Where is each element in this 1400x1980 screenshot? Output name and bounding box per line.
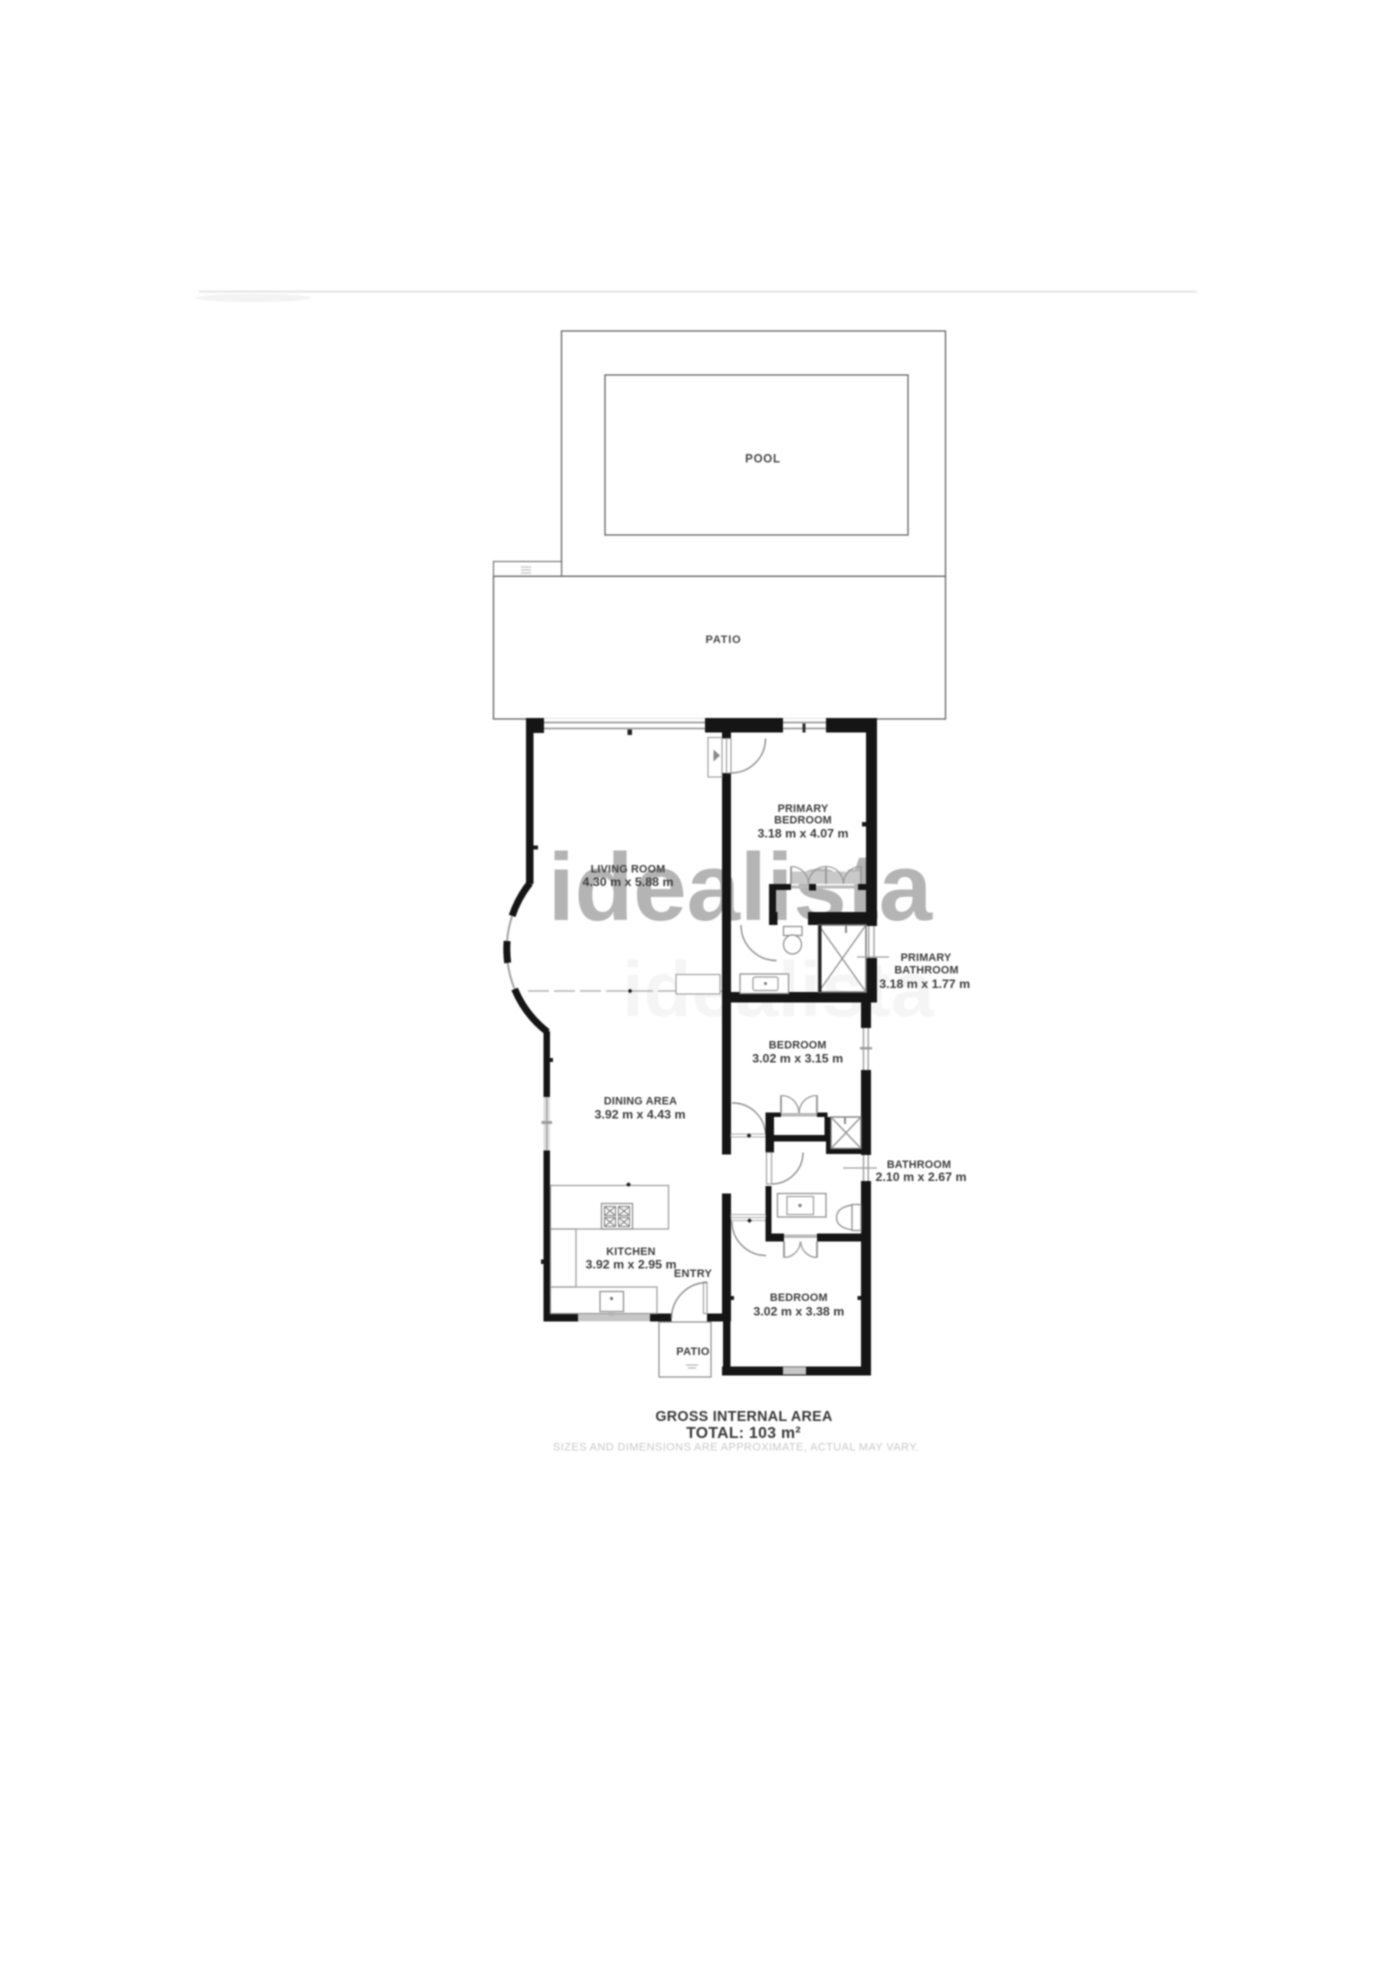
svg-text:3.92 m x 2.95 m: 3.92 m x 2.95 m — [586, 1258, 677, 1272]
svg-text:2.10 m x 2.67 m: 2.10 m x 2.67 m — [876, 1170, 967, 1184]
svg-text:3.18 m x 4.07 m: 3.18 m x 4.07 m — [758, 827, 849, 841]
svg-text:PRIMARY: PRIMARY — [901, 952, 952, 964]
svg-text:BATHROOM: BATHROOM — [894, 965, 958, 977]
svg-text:BEDROOM: BEDROOM — [770, 1292, 828, 1304]
svg-text:PATIO: PATIO — [706, 634, 742, 646]
svg-text:POOL: POOL — [745, 454, 781, 466]
svg-text:3.92 m x 4.43 m: 3.92 m x 4.43 m — [595, 1108, 686, 1122]
svg-text:SIZES AND DIMENSIONS ARE APPRO: SIZES AND DIMENSIONS ARE APPROXIMATE, AC… — [553, 1442, 919, 1454]
svg-text:TOTAL: 103 m²: TOTAL: 103 m² — [686, 1425, 801, 1442]
svg-text:4.30 m x 5.88 m: 4.30 m x 5.88 m — [583, 875, 674, 889]
svg-text:BEDROOM: BEDROOM — [774, 815, 832, 827]
svg-text:PATIO: PATIO — [676, 1346, 710, 1358]
svg-text:DINING AREA: DINING AREA — [604, 1096, 677, 1108]
svg-text:3.02 m x 3.15 m: 3.02 m x 3.15 m — [752, 1052, 843, 1066]
svg-text:3.18 m x 1.77 m: 3.18 m x 1.77 m — [879, 977, 970, 991]
svg-text:BEDROOM: BEDROOM — [769, 1040, 827, 1052]
svg-text:LIVING ROOM: LIVING ROOM — [591, 864, 666, 876]
svg-text:3.02 m x 3.38 m: 3.02 m x 3.38 m — [753, 1305, 844, 1319]
svg-text:ENTRY: ENTRY — [674, 1268, 713, 1280]
svg-text:GROSS INTERNAL AREA: GROSS INTERNAL AREA — [655, 1409, 832, 1425]
svg-text:KITCHEN: KITCHEN — [606, 1246, 655, 1258]
svg-text:PRIMARY: PRIMARY — [778, 803, 829, 815]
